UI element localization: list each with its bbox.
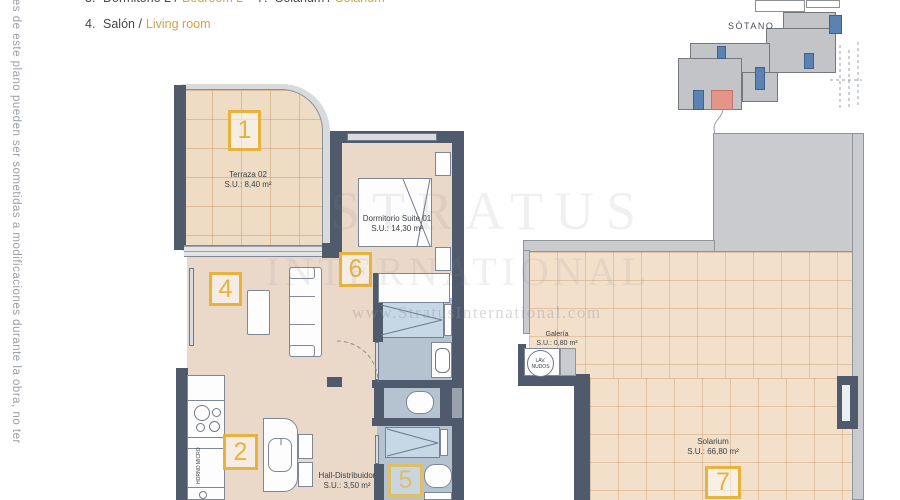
- wall: [452, 131, 464, 500]
- sofa-cushion-line: [290, 296, 315, 297]
- island-sink: [268, 438, 292, 472]
- wall: [372, 418, 452, 426]
- wall: [574, 384, 590, 500]
- shower-tray: [379, 302, 444, 338]
- legend-item-number: 4.: [85, 17, 103, 31]
- sink: [424, 492, 452, 500]
- galeria-closet: [560, 348, 576, 376]
- room-number-salon: 4: [209, 272, 242, 306]
- door-leaf: [375, 342, 379, 380]
- coffee-table: [247, 290, 270, 335]
- key-plan-stairs: [717, 46, 726, 59]
- room-name: Galería: [524, 330, 590, 339]
- wall: [440, 383, 452, 420]
- island-unit: [298, 434, 313, 459]
- side-disclaimer-text: nes de este plano pueden ser sometidas a…: [10, 0, 22, 444]
- wall-stub: [327, 377, 342, 387]
- terraza-label: Terraza 02 S.U.: 8,40 m²: [208, 170, 288, 191]
- room-area: S.U.: 14,30 m²: [347, 224, 447, 234]
- hob-burner: [196, 423, 205, 432]
- legend-row-1: 3.Dormitorio 2 /Bedroom 2: [85, 0, 243, 5]
- stair-slot: [842, 385, 850, 421]
- key-plan-title: SÓTANO: [728, 21, 774, 31]
- hob-burner: [209, 421, 220, 432]
- shower-screen: [440, 429, 448, 456]
- counter-divider: [188, 437, 224, 438]
- nightstand: [435, 152, 451, 176]
- wall: [174, 85, 186, 250]
- legend-item-name-en: Bedroom 2: [182, 0, 243, 5]
- legend-item-name-es: Dormitorio 2 /: [103, 0, 178, 5]
- counter-divider: [188, 400, 224, 401]
- sofa-armrest: [289, 267, 315, 279]
- solarium-wall-band: [523, 240, 715, 252]
- sofa: [289, 267, 322, 357]
- shower-tray: [385, 427, 440, 458]
- room-number-bano: 5: [388, 464, 423, 497]
- wall-insert: [452, 388, 462, 418]
- key-plan-highlighted-unit: [711, 90, 733, 110]
- galeria-label: Galería S.U.: 0,80 m²: [524, 330, 590, 348]
- bed: [358, 178, 432, 247]
- room-name: Solarium: [673, 437, 753, 447]
- toilet: [424, 464, 452, 488]
- wall: [330, 131, 342, 250]
- washing-machine: LAV. NUDOS: [527, 350, 554, 377]
- counter-divider: [188, 448, 224, 449]
- counter-divider: [188, 487, 224, 488]
- legend-row-1-col-2: 7.Solarium /Solarium: [257, 0, 385, 5]
- room-name: Dormitorio Suite 01: [347, 214, 447, 224]
- wall: [374, 387, 384, 418]
- key-plan-stairs: [804, 53, 814, 69]
- legend-item-name-en: Living room: [146, 17, 211, 31]
- sliding-door: [184, 245, 330, 257]
- sink-basin: [435, 348, 450, 373]
- key-plan-stairs: [829, 15, 842, 34]
- floorplan-page: 3.Dormitorio 2 /Bedroom 2 7.Solarium /So…: [0, 0, 900, 500]
- door-leaf: [375, 435, 379, 464]
- window: [189, 268, 194, 346]
- solarium-wall-band: [523, 250, 530, 334]
- key-plan-stairs: [755, 67, 765, 90]
- legend-item-name-es: Salón /: [103, 17, 142, 31]
- room-number-dormitorio: 6: [339, 252, 372, 287]
- sofa-armrest: [289, 345, 315, 357]
- oven-micro-label: HORNO MICRO: [196, 470, 210, 484]
- key-plan-stairs: [693, 90, 704, 110]
- solarium-wall-band: [713, 133, 864, 252]
- legend-item-name-en: Solarium: [335, 0, 384, 5]
- key-plan-block: [806, 0, 840, 8]
- room-number-solarium: 7: [705, 466, 741, 499]
- hob-burner: [212, 408, 221, 417]
- room-area: S.U.: 0,80 m²: [524, 339, 590, 348]
- toilet: [406, 391, 434, 414]
- bedroom-window: [347, 133, 437, 141]
- sofa-cushion-line: [290, 324, 315, 325]
- legend-item-name-es: Solarium /: [275, 0, 331, 5]
- wardrobe: [378, 273, 450, 303]
- key-plan-block: [755, 0, 805, 12]
- key-plan-leader-line: [714, 110, 723, 134]
- legend-row-2: 4.Salón /Living room: [85, 17, 211, 31]
- solarium-label: Solarium S.U.: 66,80 m²: [673, 437, 753, 458]
- solarium-wall-band: [852, 133, 864, 500]
- legend-item-number: 7.: [257, 0, 275, 5]
- shower-screen: [444, 304, 452, 336]
- room-name: Hall-Distribuidor: [307, 471, 387, 481]
- solarium-floor: [529, 252, 852, 378]
- hall-label: Hall-Distribuidor S.U.: 3,50 m²: [307, 471, 387, 492]
- sink-drain: [199, 491, 207, 499]
- nightstand: [435, 247, 451, 271]
- room-number-terraza: 1: [228, 110, 261, 151]
- room-name: Terraza 02: [208, 170, 288, 180]
- legend-item-number: 3.: [85, 0, 103, 5]
- key-plan-block: [766, 28, 836, 73]
- room-number-cocina: 2: [223, 434, 258, 470]
- dormitorio-label: Dormitorio Suite 01 S.U.: 14,30 m²: [347, 214, 447, 235]
- room-area: S.U.: 66,80 m²: [673, 447, 753, 457]
- room-area: S.U.: 8,40 m²: [208, 180, 288, 190]
- hob-burner: [194, 405, 210, 421]
- room-area: S.U.: 3,50 m²: [307, 481, 387, 491]
